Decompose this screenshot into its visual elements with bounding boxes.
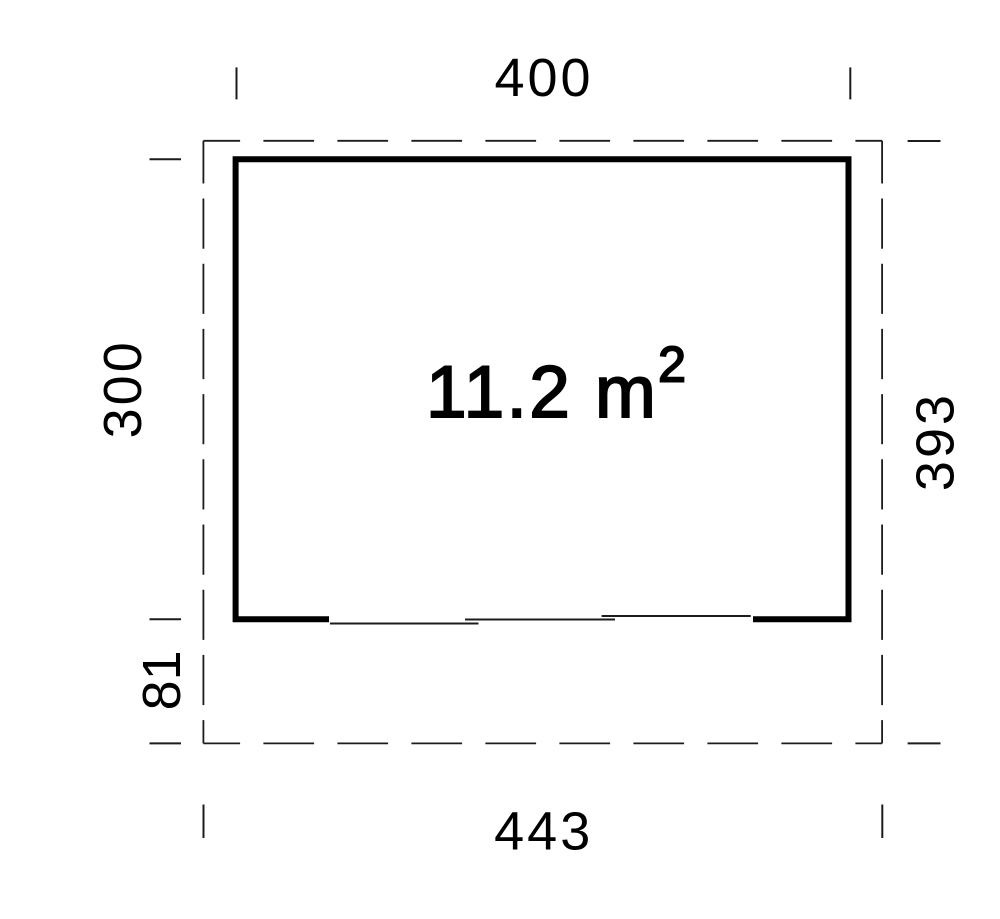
svg-text:81: 81 [132,650,192,710]
svg-text:400: 400 [494,48,593,108]
svg-text:393: 393 [906,392,966,491]
svg-text:300: 300 [93,339,153,438]
svg-text:443: 443 [494,801,593,861]
